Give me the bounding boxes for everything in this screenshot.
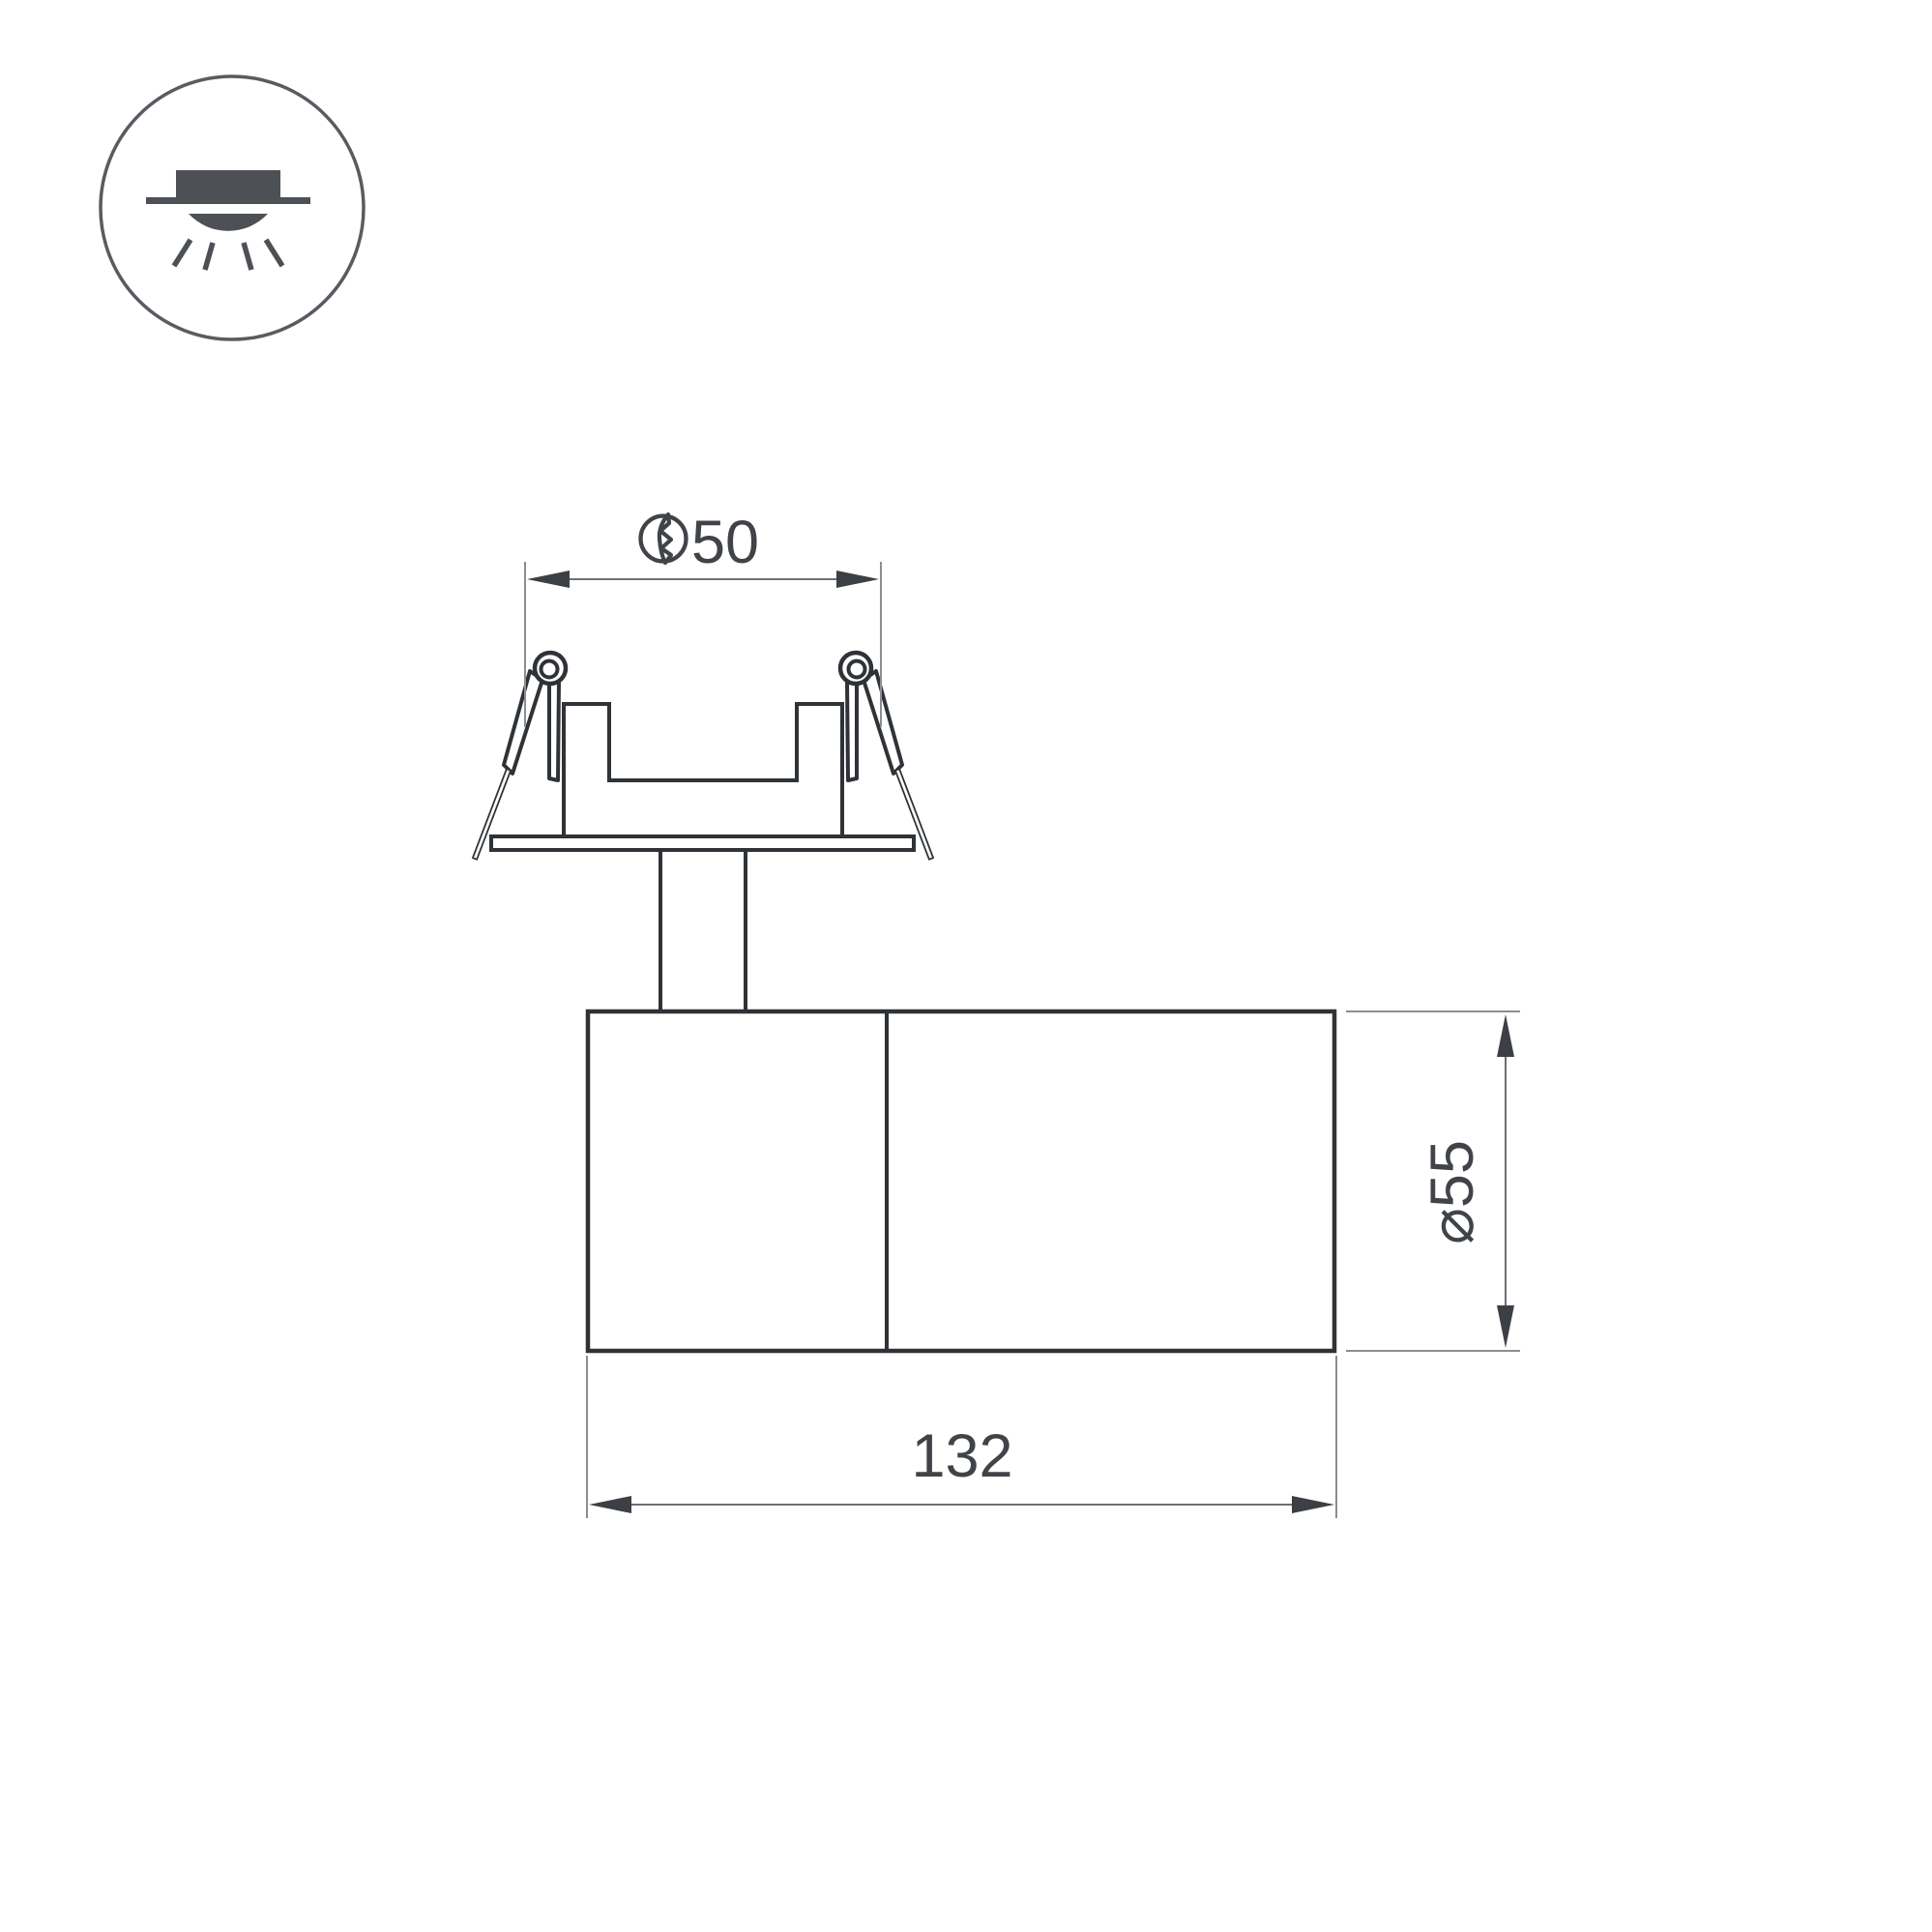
cutout-dimension: 50 bbox=[525, 509, 881, 727]
clip-pivot-hole bbox=[849, 661, 865, 678]
recessed-housing-glyph bbox=[176, 170, 280, 197]
drawing-svg: 50 ⌀55 132 bbox=[0, 0, 1932, 1932]
ceiling-line-glyph bbox=[146, 197, 310, 204]
icon-circle bbox=[101, 76, 364, 339]
mount-bracket-drawing bbox=[473, 653, 933, 1011]
clip-inner-arm bbox=[847, 681, 857, 780]
recessed-downlight-icon bbox=[101, 76, 364, 339]
arrowhead-right bbox=[1292, 1496, 1334, 1513]
clip-outer-arm bbox=[864, 671, 902, 774]
lamp-dome-glyph bbox=[189, 214, 268, 231]
hole-cut-icon bbox=[641, 514, 687, 563]
clip-pivot-hole bbox=[542, 661, 558, 678]
body-diameter-value: ⌀55 bbox=[1419, 1140, 1486, 1244]
body-outline bbox=[588, 1011, 1334, 1351]
diameter-dimension: ⌀55 bbox=[1346, 1011, 1520, 1351]
clip-outer-arm bbox=[504, 671, 542, 774]
housing-cup-profile bbox=[564, 704, 842, 836]
arrowhead-top bbox=[1497, 1014, 1514, 1057]
fixture-body-drawing bbox=[588, 1011, 1334, 1351]
cutout-diameter-value: 50 bbox=[691, 509, 759, 576]
technical-drawing-page: 50 ⌀55 132 bbox=[0, 0, 1932, 1932]
trim-flange bbox=[491, 836, 914, 850]
stem bbox=[660, 850, 746, 1011]
spring-clip-right bbox=[840, 653, 933, 860]
arrowhead-left bbox=[589, 1496, 631, 1513]
body-length-value: 132 bbox=[911, 1422, 1012, 1490]
clip-inner-arm bbox=[549, 681, 559, 780]
arrowhead-right bbox=[836, 571, 879, 588]
arrowhead-left bbox=[527, 571, 570, 588]
spring-clip-left bbox=[473, 653, 566, 860]
arrowhead-bottom bbox=[1497, 1305, 1514, 1348]
length-dimension: 132 bbox=[587, 1356, 1336, 1518]
light-rays-glyph bbox=[174, 240, 282, 270]
